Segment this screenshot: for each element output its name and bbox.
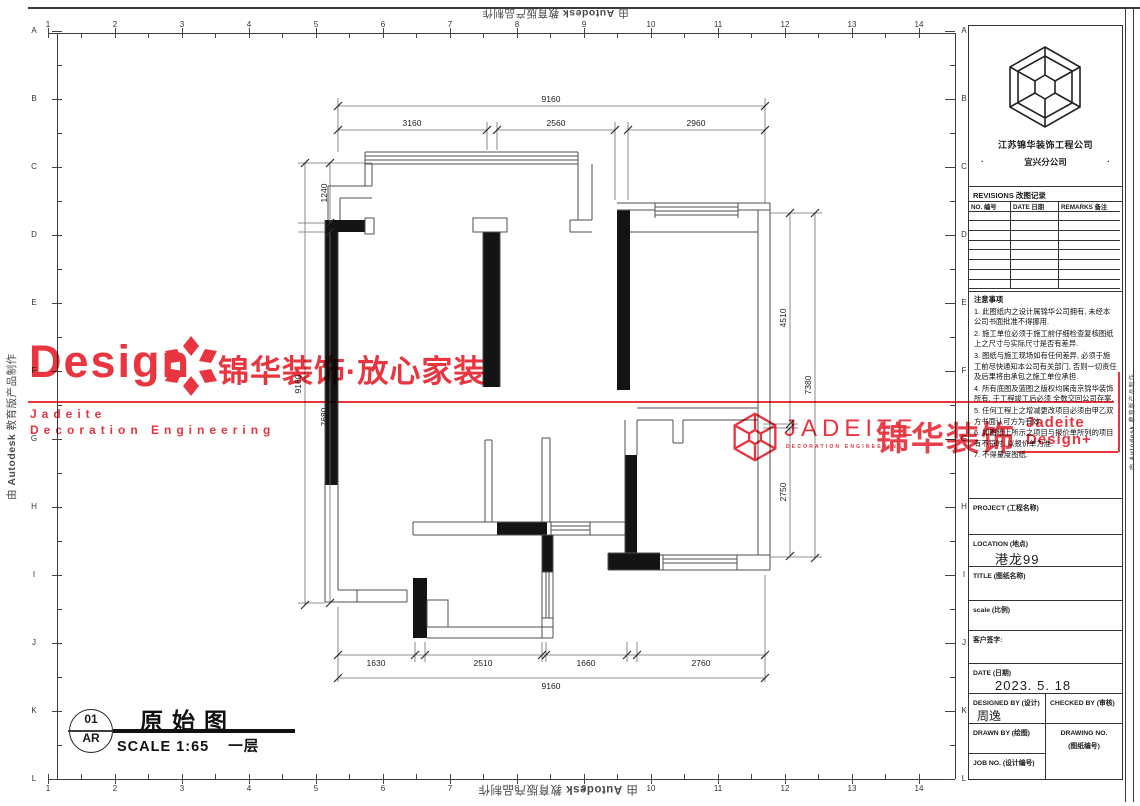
dim-left-overall: 9160	[293, 374, 303, 393]
rev-empty-cell	[1011, 241, 1059, 251]
drawing-no-label-en: DRAWING NO.	[1046, 724, 1122, 737]
branch-dot-right: ·	[1107, 156, 1110, 168]
autodesk-brand: Autodesk	[1130, 425, 1136, 460]
rev-empty-cell	[969, 212, 1011, 222]
rev-empty-cell	[969, 231, 1011, 241]
client-sign-field: 客户签字:	[969, 630, 1122, 663]
rev-empty-cell	[1011, 221, 1059, 231]
dimension-ticks	[301, 102, 819, 682]
autodesk-watermark-top: 由 Autodesk 教育版产品制作	[482, 6, 629, 21]
note-item: 3. 图纸与施工现场如有任何差异, 必须于施工前尽快通知本公司有关部门, 否则一…	[974, 351, 1117, 383]
designed-by-label: DESIGNED BY (设计)	[969, 694, 1045, 707]
drawing-scale: SCALE 1:65	[117, 739, 209, 755]
autodesk-prefix: 由	[614, 7, 628, 19]
autodesk-prefix: 由	[6, 486, 18, 500]
drawing-number: 01	[70, 713, 112, 726]
dim-left-1: 1240	[319, 183, 329, 202]
dim-right-overall: 7380	[803, 375, 813, 394]
designed-by-cell: DESIGNED BY (设计) 周逸	[969, 694, 1046, 723]
rev-empty-cell	[969, 280, 1011, 290]
drawing-discipline-code: AR	[70, 732, 112, 744]
rev-empty-cell	[969, 241, 1011, 251]
dim-top-1: 3160	[403, 118, 422, 128]
revisions-table: NO. 编号DATE 日期REMARKS 备注	[969, 201, 1122, 291]
designed-checked-row: DESIGNED BY (设计) 周逸 CHECKED BY (审核)	[969, 693, 1122, 723]
dim-bottom-4: 2760	[692, 658, 711, 668]
note-item: 5. 任何工程上之增减更改项目必须由甲乙双方书面认可方为有效.	[974, 406, 1117, 427]
location-label: LOCATION (地点)	[969, 535, 1122, 548]
notes-title: 注意事项	[974, 295, 1117, 306]
client-sign-label: 客户签字:	[969, 631, 1122, 644]
rev-empty-cell	[1011, 212, 1059, 222]
dim-right-2: 2750	[778, 482, 788, 501]
designed-by-value: 周逸	[969, 707, 1045, 724]
company-branch: · 宜兴分公司 ·	[969, 152, 1122, 168]
rev-empty-cell	[1011, 280, 1059, 290]
dim-top-3: 2960	[687, 118, 706, 128]
location-value: 港龙99	[969, 548, 1122, 568]
note-item: 4. 所有底图及蓝图之版权均属南京锦华装饰所有, 于工程竣工后必须 全数交回公司…	[974, 384, 1117, 405]
bubble-divider-line	[68, 730, 115, 732]
rev-empty-cell	[1059, 280, 1120, 290]
dim-bottom-2: 2510	[474, 658, 493, 668]
date-field: DATE (日期) 2023. 5. 18	[969, 663, 1122, 693]
autodesk-prefix: 由	[622, 783, 638, 795]
drawing-no-cell: DRAWING NO. (图纸编号)	[1046, 724, 1122, 779]
date-label: DATE (日期)	[969, 664, 1122, 677]
rev-empty-cell	[969, 221, 1011, 231]
autodesk-watermark-left: 由 Autodesk 教育版产品制作	[4, 353, 19, 500]
drawn-job-rows: DRAWN BY (绘图) JOB NO. (设计编号) DRAWING NO.…	[969, 723, 1122, 779]
autodesk-watermark-bottom: 由 Autodesk 教育版产品制作	[478, 782, 638, 798]
drawing-floor: 一层	[228, 739, 259, 755]
note-item: 1. 此图纸内之设计属锦华公司拥有, 未经本公司书面批准不得挪用.	[974, 307, 1117, 328]
rev-empty-cell	[969, 260, 1011, 270]
checked-by-cell: CHECKED BY (审核)	[1046, 694, 1122, 723]
note-item: 6. 如图纸上所示之项目与报价单所列的项目有不符时, 以报价单为准.	[974, 428, 1117, 449]
dim-top-overall: 9160	[542, 94, 561, 104]
date-value: 2023. 5. 18	[969, 677, 1122, 693]
rev-empty-cell	[1011, 260, 1059, 270]
drawing-title: 原始图	[140, 702, 236, 736]
title-label: TITLE (图纸名称)	[969, 567, 1122, 580]
rev-empty-cell	[1059, 221, 1120, 231]
rev-empty-cell	[969, 250, 1011, 260]
notes-section: 注意事项 1. 此图纸内之设计属锦华公司拥有, 未经本公司书面批准不得挪用. 2…	[969, 291, 1122, 498]
rev-empty-cell	[1059, 270, 1120, 280]
company-name: 江苏锦华装饰工程公司	[969, 138, 1122, 151]
dimension-lines	[298, 98, 822, 682]
scale-label: scale (比例)	[969, 601, 1122, 614]
rev-empty-cell	[1011, 250, 1059, 260]
dim-bottom-3: 1660	[577, 658, 596, 668]
job-no-label: JOB NO. (设计编号)	[969, 754, 1045, 767]
company-cube-logo-icon	[1002, 44, 1088, 130]
drawn-by-cell: DRAWN BY (绘图)	[969, 724, 1046, 754]
dim-left-2: 7680	[319, 407, 329, 426]
note-item: 7. 不得量度图纸.	[974, 450, 1117, 461]
autodesk-brand: Autodesk	[562, 7, 614, 19]
rev-empty-cell	[1059, 212, 1120, 222]
autodesk-suffix: 教育版产品制作	[478, 783, 566, 795]
rev-empty-cell	[969, 270, 1011, 280]
revisions-header: REVISIONS 改图记录	[969, 186, 1122, 201]
title-field: TITLE (图纸名称)	[969, 566, 1122, 600]
dim-right-1: 4510	[778, 308, 788, 327]
autodesk-suffix: 教育版产品制作	[482, 7, 562, 19]
title-block: 江苏锦华装饰工程公司 · 宜兴分公司 · REVISIONS 改图记录 NO. …	[968, 25, 1123, 780]
drawing-no-label-cn: (图纸编号)	[1046, 737, 1122, 750]
rev-col-header: NO. 编号	[969, 202, 1011, 212]
location-field: LOCATION (地点) 港龙99	[969, 534, 1122, 566]
cad-sheet: 11223344556677889910101111121213131414AA…	[0, 0, 1140, 806]
rev-empty-cell	[1059, 260, 1120, 270]
rev-empty-cell	[1059, 241, 1120, 251]
rev-col-header: REMARKS 备注	[1059, 202, 1120, 212]
branch-dot-left: ·	[981, 156, 984, 168]
dim-bottom-overall: 9160	[542, 681, 561, 691]
rev-empty-cell	[1011, 231, 1059, 241]
project-field: PROJECT (工程名称)	[969, 498, 1122, 534]
dim-top-2: 2560	[547, 118, 566, 128]
rev-empty-cell	[1011, 270, 1059, 280]
autodesk-suffix: 教育版产品制作	[1130, 373, 1136, 425]
wall-fills	[325, 210, 660, 638]
autodesk-watermark-right: 由 Autodesk 教育版产品制作	[1127, 373, 1136, 470]
note-item: 2. 施工单位必须于施工前仔细检查复核图纸上之尺寸与实际尺寸是否有差异.	[974, 329, 1117, 350]
branch-name: 宜兴分公司	[1024, 156, 1067, 168]
rev-empty-cell	[1059, 250, 1120, 260]
project-label: PROJECT (工程名称)	[969, 499, 1122, 512]
scale-field: scale (比例)	[969, 600, 1122, 630]
checked-by-label: CHECKED BY (审核)	[1046, 694, 1122, 707]
job-no-cell: JOB NO. (设计编号)	[969, 754, 1046, 780]
autodesk-prefix: 由	[1130, 460, 1136, 470]
drawn-by-label: DRAWN BY (绘图)	[969, 724, 1045, 737]
autodesk-suffix: 教育版产品制作	[6, 353, 18, 433]
dim-bottom-1: 1630	[367, 658, 386, 668]
rev-col-header: DATE 日期	[1011, 202, 1059, 212]
drawing-scale-line: SCALE 1:65 一层	[117, 735, 259, 756]
autodesk-brand: Autodesk	[566, 783, 622, 795]
autodesk-brand: Autodesk	[6, 434, 18, 486]
rev-empty-cell	[1059, 231, 1120, 241]
